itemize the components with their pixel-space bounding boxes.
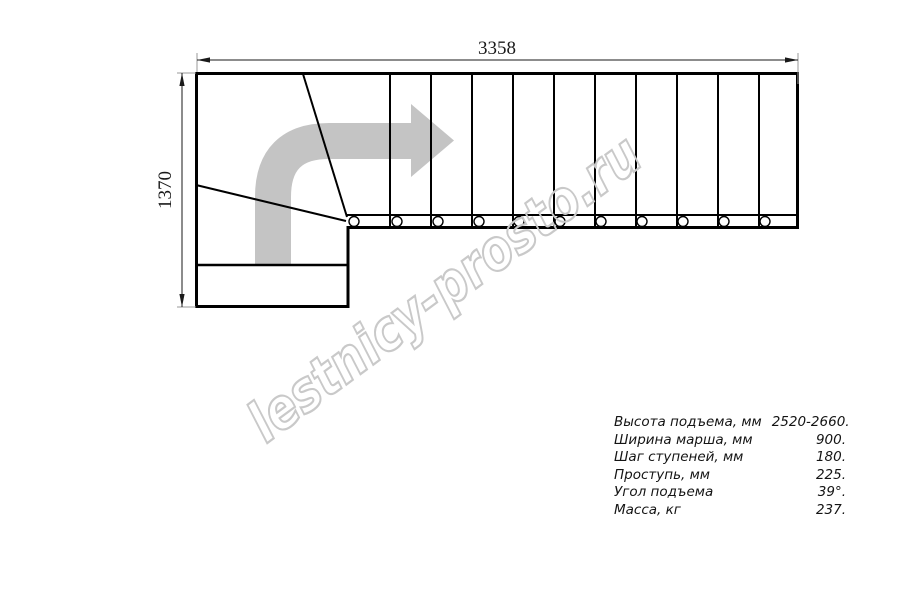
dimension-width: 3358 bbox=[197, 38, 798, 63]
spec-list: Высота подъема, мм 2520-2660. Ширина мар… bbox=[614, 414, 846, 520]
spec-label: Угол подъема bbox=[614, 484, 713, 502]
spec-label: Ширина марша, мм bbox=[614, 432, 753, 450]
spec-value: 237. bbox=[816, 502, 846, 520]
direction-arrow-head bbox=[411, 104, 454, 177]
spec-label: Масса, кг bbox=[614, 502, 681, 520]
dimension-width-value: 3358 bbox=[478, 38, 516, 59]
dim-arrow-left-icon bbox=[197, 57, 210, 62]
spec-value: 225. bbox=[816, 467, 846, 485]
spec-row: Ширина марша, мм 900. bbox=[614, 432, 846, 450]
dim-arrow-up-icon bbox=[179, 73, 184, 86]
spec-value: 900. bbox=[816, 432, 846, 450]
spec-label: Проступь, мм bbox=[614, 467, 710, 485]
spec-value: 39°. bbox=[818, 484, 846, 502]
dimension-height: 1370 bbox=[155, 73, 185, 307]
spec-label: Высота подъема, мм bbox=[614, 414, 762, 432]
spec-row: Высота подъема, мм 2520-2660. bbox=[614, 414, 846, 432]
spec-row: Шаг ступеней, мм 180. bbox=[614, 449, 846, 467]
spec-label: Шаг ступеней, мм bbox=[614, 449, 743, 467]
spec-row: Проступь, мм 225. bbox=[614, 467, 846, 485]
spec-value: 180. bbox=[816, 449, 846, 467]
dim-arrow-right-icon bbox=[785, 57, 798, 62]
spec-row: Масса, кг 237. bbox=[614, 502, 846, 520]
watermark-text: lestnicy-prosto.ru bbox=[236, 122, 654, 455]
stair-drawing-page: 3358 1370 lestnicy-prosto.ru Высота подъ… bbox=[0, 0, 900, 600]
direction-arrow bbox=[273, 104, 454, 266]
dim-arrow-down-icon bbox=[179, 294, 184, 307]
spec-value: 2520-2660. bbox=[772, 414, 850, 432]
dimension-height-value: 1370 bbox=[155, 171, 176, 209]
spec-row: Угол подъема 39°. bbox=[614, 484, 846, 502]
